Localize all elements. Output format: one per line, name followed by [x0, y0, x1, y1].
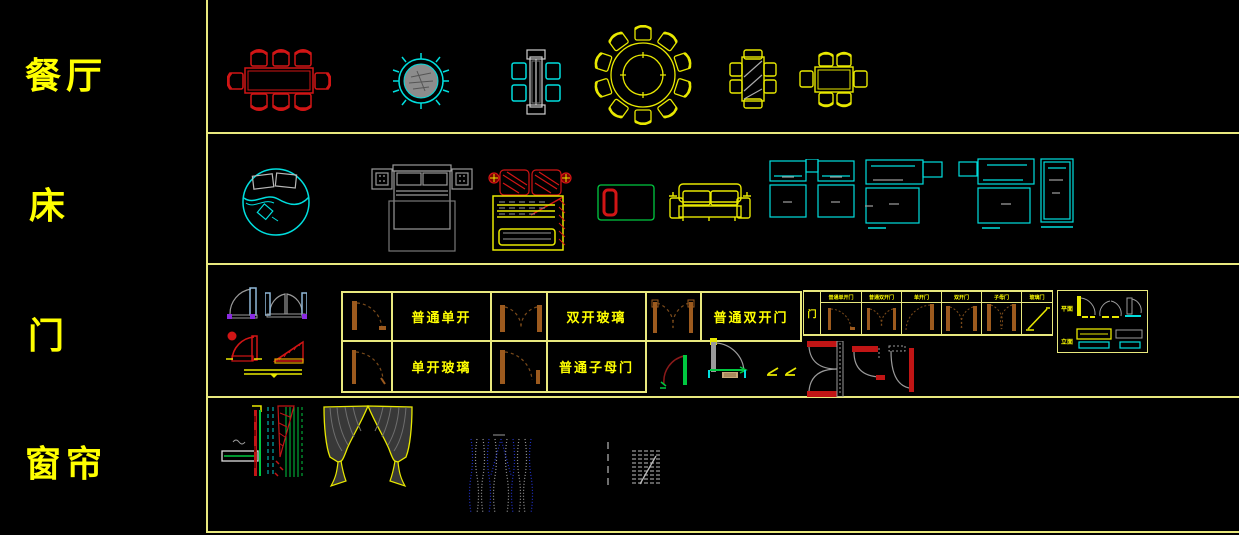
types-header-3: 单开门 [902, 292, 941, 302]
door-table-line [341, 291, 343, 393]
bottom-border [206, 531, 1239, 533]
green-bed-block[interactable] [597, 184, 655, 222]
types-header-2: 普通双开门 [862, 292, 901, 302]
types-header-1: 普通单开门 [821, 292, 861, 302]
door-table-line [800, 291, 802, 342]
door-red-single-block-1[interactable] [852, 346, 886, 382]
door-red-single-block-2[interactable] [887, 344, 921, 394]
red-bed-block[interactable] [487, 169, 573, 253]
types-header-5: 子母门 [982, 292, 1021, 302]
door-single-red-block[interactable] [226, 330, 262, 366]
twin-beds-cyan-block[interactable] [769, 159, 857, 219]
curtain-hatch-block[interactable] [630, 448, 664, 488]
door-table-line [645, 291, 647, 393]
door-symbol-single-1[interactable] [348, 299, 388, 335]
vertical-divider [206, 0, 208, 533]
cad-canvas[interactable]: 餐厅 床 门 窗帘 [0, 0, 1239, 535]
door-symbol-zimu[interactable] [498, 348, 544, 388]
door-swing-marks-block[interactable] [766, 365, 800, 377]
category-label-dining: 餐厅 [25, 58, 107, 94]
door-symbol-single-2[interactable] [348, 348, 388, 388]
double-bed-gray-block[interactable] [371, 161, 473, 253]
glass-table-block[interactable] [729, 49, 777, 109]
curtain-blue-sheer-block[interactable] [467, 431, 535, 515]
round-table-cyan-block[interactable] [391, 51, 451, 111]
types-symbol-wide-single[interactable] [904, 302, 939, 334]
cross-table-block[interactable] [510, 49, 562, 115]
types-symbol-double-2[interactable] [944, 302, 979, 334]
category-label-bed: 床 [29, 188, 70, 224]
legend-plan-symbols[interactable] [1076, 294, 1142, 322]
curtain-dashed-line-block[interactable] [604, 442, 612, 490]
row-divider-2 [206, 263, 1239, 265]
door-label-putong-shuangkaimen: 普通双开门 [702, 292, 800, 340]
single-bed-cyan-block-3[interactable] [1040, 158, 1076, 232]
sofa-yellow-block[interactable] [667, 182, 753, 222]
dining-table-8-seat-block[interactable] [227, 47, 331, 113]
types-table-line [803, 334, 1053, 336]
door-table-line [490, 291, 492, 393]
category-label-door: 门 [28, 318, 69, 354]
single-bed-cyan-block-2[interactable] [957, 158, 1037, 232]
dining-table-6-seat-block[interactable] [797, 50, 869, 108]
types-header-6: 玻璃门 [1022, 292, 1052, 302]
door-label-dankai-boli: 单开玻璃 [393, 342, 490, 391]
types-table-side-label: 门 [804, 302, 820, 324]
types-table-line [1052, 290, 1053, 336]
door-red-double-block[interactable] [807, 341, 849, 397]
curtain-tied-yellow-block[interactable] [322, 405, 414, 489]
types-symbol-fold[interactable] [1025, 305, 1051, 333]
legend-elevation-symbols[interactable] [1076, 327, 1144, 351]
door-label-shuangkai-boli: 双开玻璃 [548, 292, 645, 340]
threshold-lines-block[interactable] [244, 368, 302, 378]
types-header-4: 双开门 [942, 292, 981, 302]
door-gray-green-block[interactable] [706, 336, 750, 382]
category-label-curtain: 窗帘 [25, 446, 107, 482]
row-divider-1 [206, 132, 1239, 134]
curtain-track-bar-block[interactable] [250, 404, 266, 480]
curtain-elevation-block[interactable] [266, 405, 306, 481]
door-symbol-double-glass[interactable] [498, 303, 544, 335]
door-label-putong-dankai: 普通单开 [393, 292, 490, 340]
door-green-arc-block[interactable] [658, 350, 694, 392]
types-symbol-double[interactable] [865, 306, 898, 333]
door-label-putong-zimumen: 普通子母门 [548, 342, 645, 391]
legend-row-plan-label: 平面 [1060, 303, 1074, 313]
row-divider-3 [206, 396, 1239, 398]
round-bed-block[interactable] [240, 165, 312, 239]
door-double-blue-block[interactable] [265, 290, 307, 320]
door-triangle-red-block[interactable] [273, 339, 307, 365]
single-bed-cyan-block-1[interactable] [865, 158, 945, 232]
types-symbol-double-3[interactable] [984, 302, 1019, 334]
types-symbol-single[interactable] [825, 306, 858, 333]
door-single-blue-block[interactable] [227, 285, 259, 321]
door-symbol-double-normal[interactable] [650, 298, 696, 336]
door-table-line [341, 391, 647, 393]
legend-row-elevation-label: 立面 [1060, 336, 1074, 346]
round-table-10-seat-block[interactable] [593, 25, 693, 125]
